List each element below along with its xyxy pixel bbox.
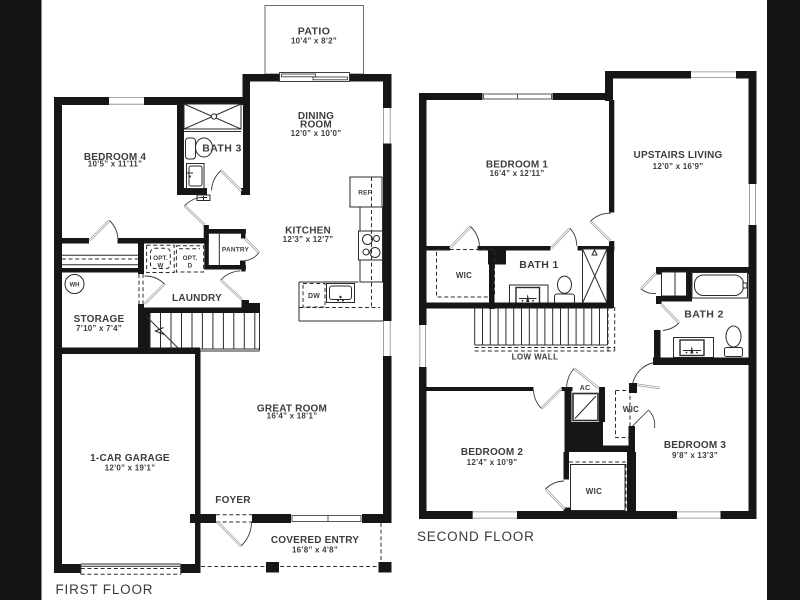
svg-text:AC: AC [580,385,591,392]
svg-text:WH: WH [70,283,80,289]
svg-text:WIC: WIC [586,487,602,496]
svg-text:BEDROOM 3: BEDROOM 3 [664,440,727,451]
svg-text:OPT.: OPT. [153,255,168,262]
svg-text:OPT.: OPT. [183,255,198,262]
svg-text:BATH 2: BATH 2 [684,309,724,321]
svg-text:W: W [157,262,163,269]
svg-text:REF: REF [358,190,372,197]
svg-text:BATH 1: BATH 1 [519,259,559,271]
svg-text:9’8” x 13’3”: 9’8” x 13’3” [672,451,718,460]
svg-text:10’5” x 11’11”: 10’5” x 11’11” [88,160,142,169]
svg-text:BATH 3: BATH 3 [202,143,242,155]
svg-text:WIC: WIC [623,405,639,414]
svg-text:12’0” x 19’1”: 12’0” x 19’1” [105,464,156,473]
svg-text:DW: DW [308,293,320,300]
svg-text:16’4” x 18’1”: 16’4” x 18’1” [267,412,318,421]
svg-text:12’3” x 12’7”: 12’3” x 12’7” [283,235,334,244]
svg-text:COVERED ENTRY: COVERED ENTRY [271,535,359,546]
svg-text:LOW WALL: LOW WALL [512,353,559,362]
svg-text:1-CAR GARAGE: 1-CAR GARAGE [90,453,170,464]
svg-text:FIRST FLOOR: FIRST FLOOR [56,582,154,597]
svg-text:PANTRY: PANTRY [222,247,250,254]
svg-text:WIC: WIC [456,271,472,280]
svg-text:12’0” x 16’9”: 12’0” x 16’9” [653,162,704,171]
svg-text:SECOND FLOOR: SECOND FLOOR [417,529,535,544]
svg-text:10’4” x 8’2”: 10’4” x 8’2” [291,37,337,46]
svg-text:12’0” x 10’0”: 12’0” x 10’0” [291,129,342,138]
svg-text:FOYER: FOYER [215,495,251,506]
svg-text:7’10” x 7’4”: 7’10” x 7’4” [76,324,122,333]
svg-text:16’4” x 12’11”: 16’4” x 12’11” [490,169,545,178]
svg-text:D: D [188,262,193,269]
svg-text:LAUNDRY: LAUNDRY [172,293,222,304]
svg-text:UPSTAIRS LIVING: UPSTAIRS LIVING [634,150,723,161]
svg-text:12’4” x 10’9”: 12’4” x 10’9” [467,458,518,467]
svg-text:16’8” x 4’8”: 16’8” x 4’8” [292,546,338,555]
svg-text:BEDROOM 2: BEDROOM 2 [461,447,524,458]
